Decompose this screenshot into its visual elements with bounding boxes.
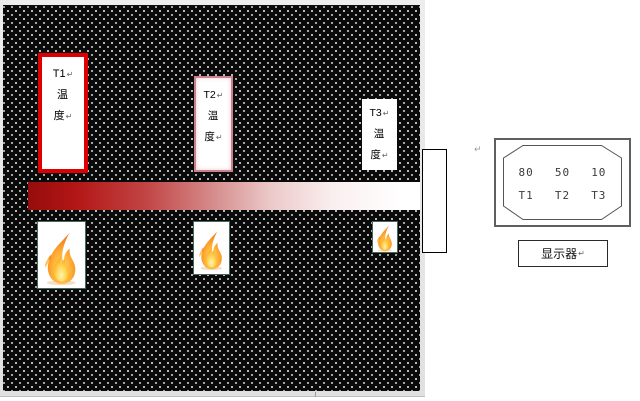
- display-channels-row: T1 T2 T3: [508, 189, 617, 202]
- sensor-t2-label: 温: [208, 106, 220, 127]
- display-value-t3: 10: [581, 166, 617, 179]
- display-channel-t2: T2: [544, 189, 580, 202]
- sensor-t1-label: 度↵: [54, 106, 73, 127]
- sensor-t3-box[interactable]: T3↵ 温 度↵: [362, 99, 397, 170]
- return-mark: ↵: [216, 133, 223, 142]
- heat-gradient-rod[interactable]: [28, 182, 420, 210]
- return-mark: ↵: [382, 151, 389, 160]
- flame-icon: [42, 229, 81, 288]
- return-mark: ↵: [383, 109, 390, 118]
- display-caption-label: 显示器: [541, 245, 577, 262]
- flame-icon: [375, 225, 395, 252]
- sensor-t1-label: T1↵: [53, 64, 74, 85]
- return-mark: ↵: [217, 91, 224, 100]
- display-values-row: 80 50 10: [508, 166, 617, 179]
- display-value-t2: 50: [544, 166, 580, 179]
- display-value-t1: 80: [508, 166, 544, 179]
- sensor-t2-label: T2↵: [204, 85, 224, 106]
- sensor-t3-label: T3↵: [370, 103, 390, 124]
- flame-2-box[interactable]: [193, 221, 230, 275]
- wall-block[interactable]: [422, 149, 447, 253]
- sensor-t2-label: 度↵: [204, 127, 222, 148]
- return-mark: ↵: [578, 249, 585, 258]
- sensor-t2-box[interactable]: T2↵ 温 度↵: [194, 76, 233, 172]
- flame-3-box[interactable]: [372, 221, 398, 253]
- return-mark: ↵: [66, 112, 73, 121]
- sensor-t1-box[interactable]: T1↵ 温 度↵: [38, 53, 88, 173]
- sensor-t3-label: 度↵: [370, 145, 388, 166]
- return-mark: ↵: [67, 70, 74, 79]
- text-caret: [315, 392, 316, 397]
- paragraph-mark: ↵: [474, 144, 482, 155]
- display-channel-t1: T1: [508, 189, 544, 202]
- flame-1-box[interactable]: [37, 221, 86, 289]
- display-panel[interactable]: 80 50 10 T1 T2 T3: [494, 138, 631, 227]
- flame-icon: [197, 227, 226, 274]
- display-screen-octagon: [503, 145, 622, 220]
- sensor-t3-label: 温: [374, 124, 386, 145]
- display-caption-box[interactable]: 显示器 ↵: [518, 240, 608, 267]
- display-channel-t3: T3: [581, 189, 617, 202]
- sensor-t1-label: 温: [57, 85, 69, 106]
